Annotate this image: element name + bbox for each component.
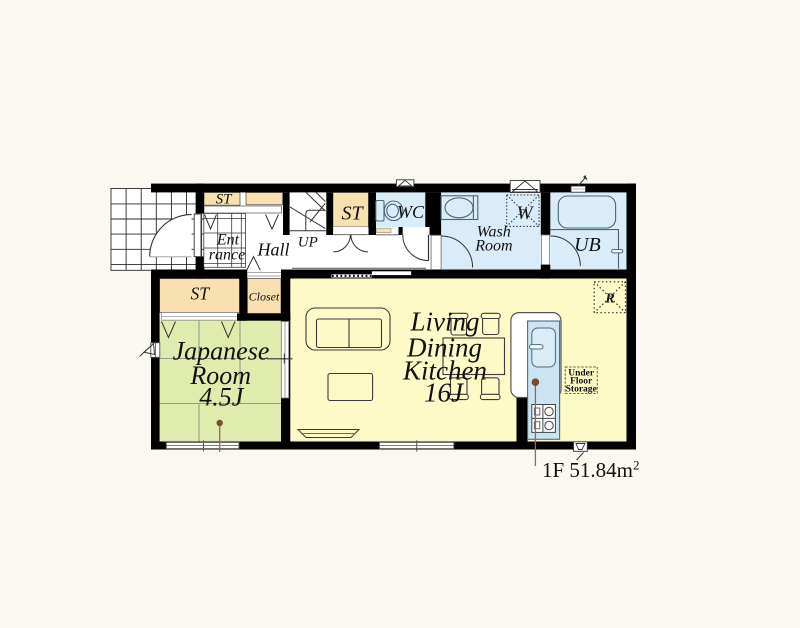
svg-text:UP: UP [298, 235, 318, 251]
svg-text:rance: rance [209, 247, 245, 264]
svg-text:ST: ST [341, 203, 364, 225]
svg-text:ST: ST [216, 192, 234, 208]
svg-text:Closet: Closet [249, 290, 280, 304]
svg-text:4.5J: 4.5J [199, 383, 245, 412]
svg-text:1F 51.84m2: 1F 51.84m2 [542, 458, 640, 483]
svg-text:W: W [517, 203, 535, 224]
svg-text:R: R [604, 292, 614, 307]
svg-text:Room: Room [474, 238, 512, 255]
svg-text:Hall: Hall [256, 240, 289, 260]
svg-text:16J: 16J [424, 378, 465, 408]
svg-text:Storage: Storage [566, 385, 597, 395]
svg-text:ST: ST [190, 284, 210, 304]
svg-text:WC: WC [397, 202, 425, 222]
svg-text:UB: UB [574, 234, 601, 256]
